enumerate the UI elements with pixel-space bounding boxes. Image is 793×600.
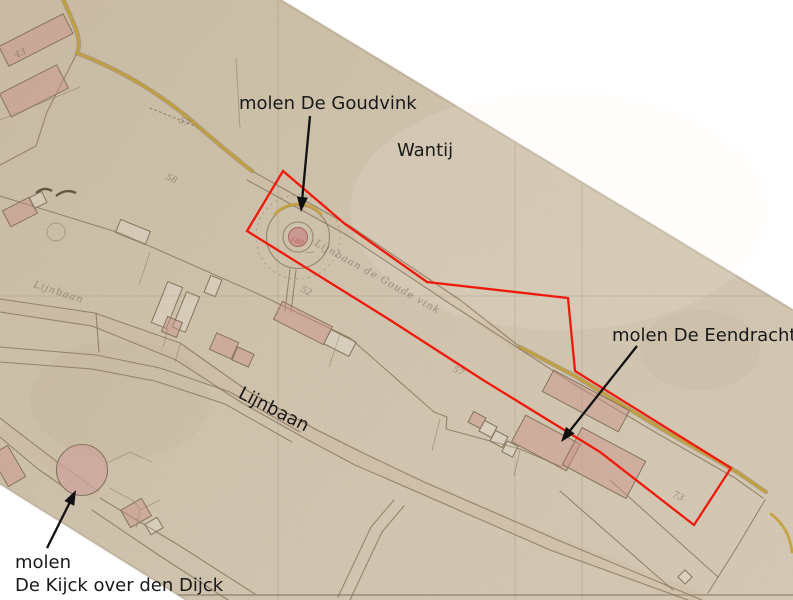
kijck-mill-circle [57,445,108,496]
label-molen-de-eendracht: molen De Eendracht [612,324,793,347]
label-molen-de-kijck-line2: De Kijck over den Dijck [15,574,223,597]
historical-map-image: Lijnbaan de Goude vinkLijnbaan4357585257… [0,0,793,600]
label-molen-de-goudvink: molen De Goudvink [239,92,417,115]
annotated-historical-map: Lijnbaan de Goude vinkLijnbaan4357585257… [0,0,793,600]
label-molen-de-kijck-line1: molen [15,551,223,574]
label-wantij: Wantij [397,139,453,162]
label-molen-de-kijck: molen De Kijck over den Dijck [15,551,223,597]
